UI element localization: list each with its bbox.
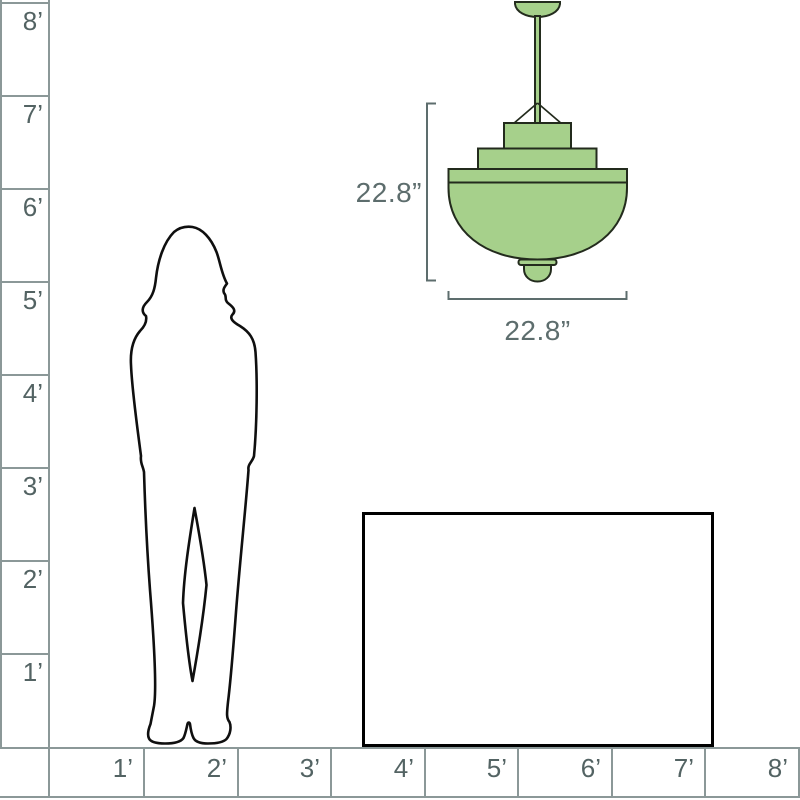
horizontal-ruler-segment: 8’ <box>706 749 800 796</box>
vertical-ruler-segment: 5’ <box>2 281 48 374</box>
height-dimension-line <box>427 104 436 281</box>
pendant-finial-flare <box>519 260 557 266</box>
woman-outline <box>131 227 257 744</box>
woman-legs-gap <box>183 508 207 681</box>
vertical-ruler-segment: 3’ <box>2 467 48 560</box>
vertical-ruler-segment: 8’ <box>2 2 48 95</box>
vertical-ruler-segment: 6’ <box>2 188 48 281</box>
vertical-ruler: 8’7’6’5’4’3’2’1’ <box>0 0 50 749</box>
width-dimension-line <box>449 291 627 299</box>
table-outline <box>362 512 714 747</box>
horizontal-ruler-segment: 1’ <box>50 749 145 796</box>
height-dimension-label: 22.8” <box>328 179 422 207</box>
pendant-rod <box>535 16 540 124</box>
scale-diagram: 8’7’6’5’4’3’2’1’ 1’2’3’4’5’6’7’8’ 22.8” <box>0 0 800 800</box>
vertical-ruler-segment: 4’ <box>2 374 48 467</box>
vertical-ruler-segment: 2’ <box>2 560 48 653</box>
vertical-ruler-segment: 1’ <box>2 653 48 747</box>
horizontal-ruler-segment: 5’ <box>426 749 519 796</box>
pendant-rim-band <box>449 169 628 183</box>
pendant-canopy <box>515 2 560 17</box>
horizontal-ruler-segment: 7’ <box>613 749 706 796</box>
pendant-bowl <box>449 183 628 260</box>
pendant-tier-1 <box>504 123 571 149</box>
pendant-tier-2 <box>478 149 597 170</box>
pendant-cables <box>513 103 562 124</box>
width-dimension-label: 22.8” <box>467 317 608 345</box>
horizontal-ruler-spacer <box>0 749 50 796</box>
vertical-ruler-segment: 7’ <box>2 95 48 188</box>
horizontal-ruler-segment: 2’ <box>145 749 239 796</box>
horizontal-ruler-segment: 4’ <box>332 749 426 796</box>
pendant-finial-knob <box>524 265 551 282</box>
horizontal-ruler-segment: 3’ <box>239 749 332 796</box>
horizontal-ruler: 1’2’3’4’5’6’7’8’ <box>0 747 800 798</box>
horizontal-ruler-segment: 6’ <box>519 749 613 796</box>
